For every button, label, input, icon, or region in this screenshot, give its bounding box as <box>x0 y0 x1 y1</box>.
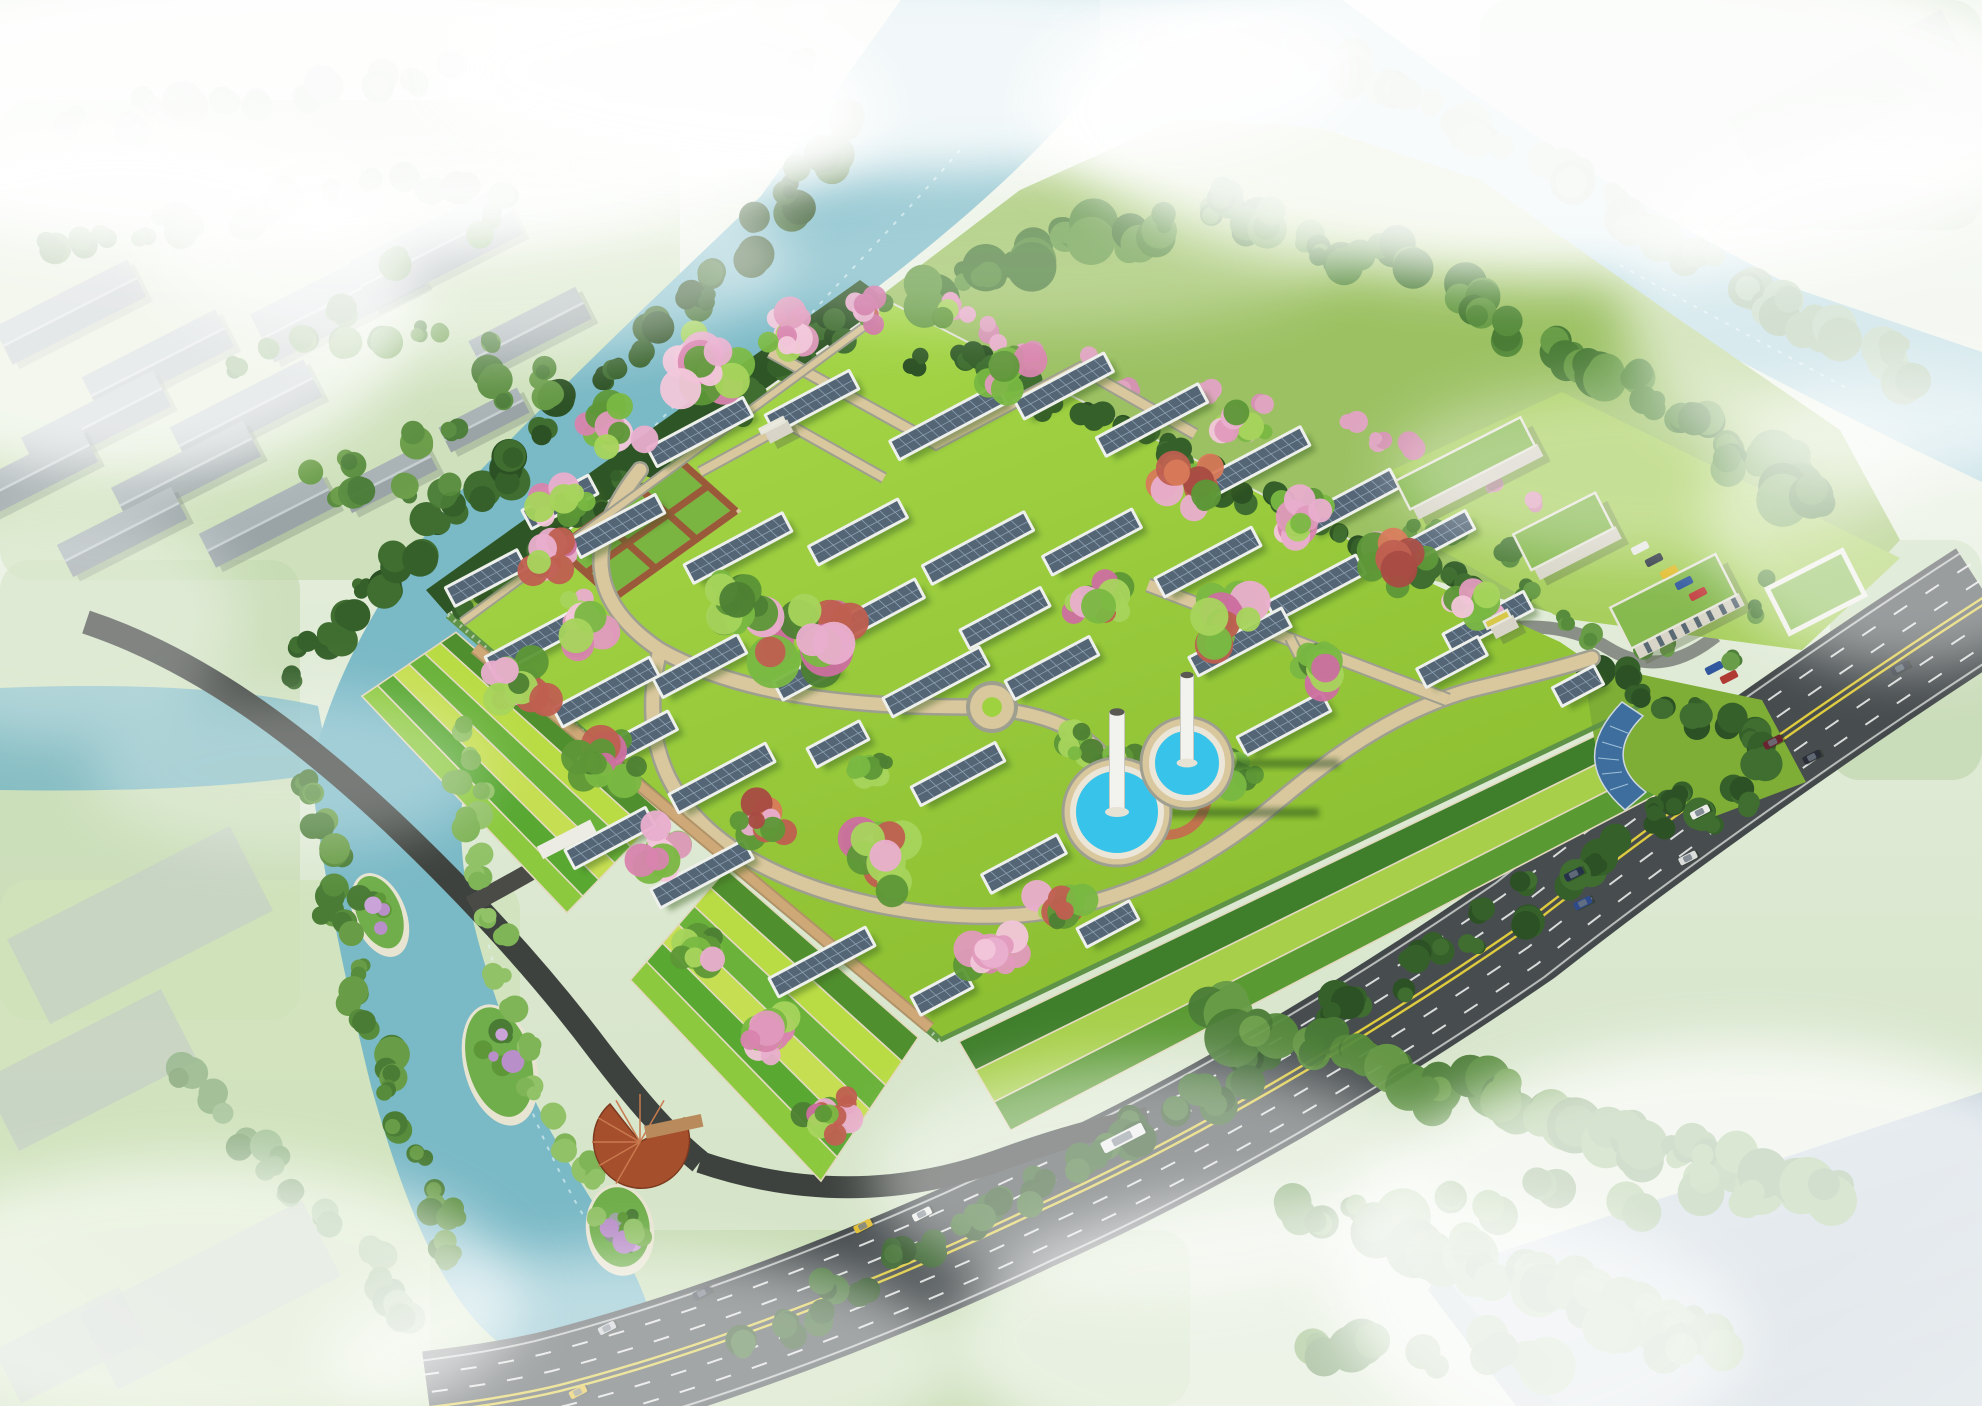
vignette <box>0 0 1982 1406</box>
aerial-site-rendering <box>0 0 1982 1406</box>
aerial-rendering-stage <box>0 0 1982 1406</box>
